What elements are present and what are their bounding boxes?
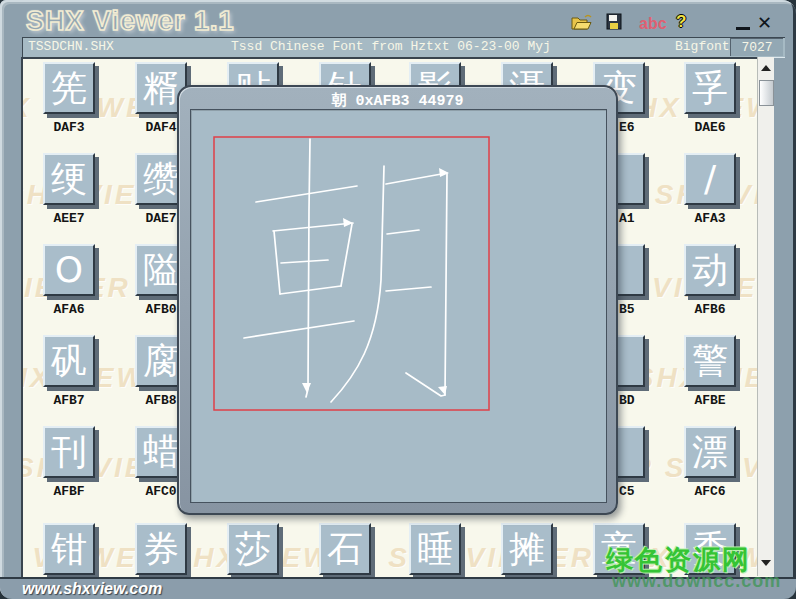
glyph-code-label: AFBE <box>664 393 756 408</box>
font-type-label: Bigfont <box>675 39 730 54</box>
glyph-char: 警 <box>692 337 728 385</box>
preview-body <box>190 109 607 503</box>
glyph-char: 券 <box>143 525 179 573</box>
glyph-char: 筅 <box>51 64 87 112</box>
glyph-code-label: AFB7 <box>23 393 115 408</box>
glyph-char: 蜡 <box>143 428 179 476</box>
glyph-char: 绠 <box>51 155 87 203</box>
glyph-char: 腐 <box>143 337 179 385</box>
glyph-code-label: E6 <box>619 120 649 135</box>
glyph-char: 漂 <box>692 428 728 476</box>
glyph-cell[interactable]: 漂 <box>684 426 736 478</box>
glyph-cell[interactable]: O <box>43 244 95 296</box>
glyph-char: 钳 <box>51 525 87 573</box>
glyph-count: 7027 <box>730 38 783 56</box>
site-watermark-url: www.downcc.com <box>612 571 781 592</box>
font-description: Tssd Chinese Font from Hztxt 06-23-00 My… <box>231 39 551 54</box>
glyph-code-label: AFBF <box>23 484 115 499</box>
glyph-char: 隘 <box>143 246 179 294</box>
glyph-cell[interactable]: 券 <box>135 523 187 575</box>
glyph-char: 石 <box>327 525 363 573</box>
glyph-stroke-drawing <box>191 110 606 502</box>
app-window: SHX Viewer 1.1 abc ? ✕ TSSDCHN.SHX Tssd … <box>0 0 796 599</box>
glyph-cell[interactable]: 刊 <box>43 426 95 478</box>
save-icon[interactable] <box>606 13 622 30</box>
glyph-cell[interactable]: 矾 <box>43 335 95 387</box>
glyph-char: 睡 <box>417 525 453 573</box>
scroll-up-icon[interactable] <box>761 65 771 71</box>
glyph-cell[interactable]: 睡 <box>409 523 461 575</box>
glyph-code-label: AEE7 <box>23 211 115 226</box>
glyph-cell[interactable]: 警 <box>684 335 736 387</box>
glyph-cell[interactable]: 石 <box>319 523 371 575</box>
preview-title: 朝 0xAFB3 44979 <box>179 91 616 110</box>
scrollbar-thumb[interactable] <box>759 80 774 106</box>
glyph-cell[interactable]: 钳 <box>43 523 95 575</box>
glyph-char: 孚 <box>692 64 728 112</box>
glyph-char: 缵 <box>143 155 179 203</box>
glyph-code-label: AFC6 <box>664 484 756 499</box>
glyph-code-label: AFA3 <box>664 211 756 226</box>
glyph-char: 矾 <box>51 337 87 385</box>
glyph-code-label: BD <box>619 393 649 408</box>
glyph-char: 糈 <box>143 64 179 112</box>
glyph-strokes <box>244 139 447 402</box>
glyph-code-label: AFA6 <box>23 302 115 317</box>
glyph-cell[interactable]: 孚 <box>684 62 736 114</box>
stroke-arrowheads <box>302 168 449 395</box>
glyph-char: / <box>704 155 716 203</box>
close-button[interactable]: ✕ <box>757 12 772 34</box>
scroll-down-icon[interactable] <box>761 560 771 566</box>
glyph-code-label: C5 <box>619 484 649 499</box>
glyph-char: O <box>55 246 83 294</box>
status-bar: TSSDCHN.SHX Tssd Chinese Font from Hztxt… <box>22 37 785 58</box>
text-mode-icon[interactable]: abc <box>639 15 667 33</box>
minimize-button[interactable] <box>736 27 750 30</box>
help-icon[interactable]: ? <box>676 12 686 32</box>
loaded-file-name: TSSDCHN.SHX <box>28 39 114 54</box>
glyph-code-label: B5 <box>619 302 649 317</box>
glyph-cell[interactable]: / <box>684 153 736 205</box>
glyph-code-label: A1 <box>619 211 649 226</box>
open-file-icon[interactable] <box>570 13 594 32</box>
app-website-url: www.shxview.com <box>22 580 162 598</box>
glyph-cell[interactable]: 绠 <box>43 153 95 205</box>
glyph-cell[interactable]: 莎 <box>227 523 279 575</box>
glyph-cell[interactable]: 筅 <box>43 62 95 114</box>
vertical-scrollbar[interactable] <box>757 57 774 576</box>
glyph-code-label: DAF3 <box>23 120 115 135</box>
glyph-char: 莎 <box>235 525 271 573</box>
glyph-char: 动 <box>692 246 728 294</box>
glyph-cell[interactable]: 摊 <box>501 523 553 575</box>
glyph-preview-window[interactable]: 朝 0xAFB3 44979 <box>177 85 618 515</box>
glyph-char: 刊 <box>51 428 87 476</box>
app-title: SHX Viewer 1.1 <box>26 6 235 37</box>
glyph-cell[interactable]: 动 <box>684 244 736 296</box>
glyph-char: 摊 <box>509 525 545 573</box>
glyph-code-label: DAE6 <box>664 120 756 135</box>
glyph-code-label: AFB6 <box>664 302 756 317</box>
